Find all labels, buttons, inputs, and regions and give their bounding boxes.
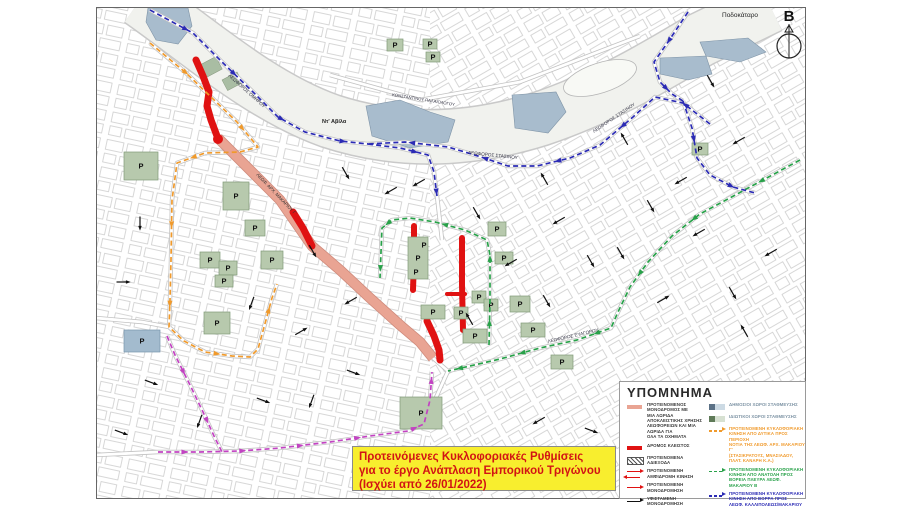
one-way-red-arrow-swatch xyxy=(627,483,644,491)
parking-p-marker: P xyxy=(413,268,418,277)
legend-item-text: ΠΡΟΤΕΙΝΟΜΕΝΗΜΟΝΟΔΡΟΜΗΣΗ xyxy=(647,482,683,493)
legend-item: ΥΦΙΣΤΑΜΕΝΗΜΟΝΟΔΡΟΜΗΣΗ xyxy=(627,496,705,506)
legend-item-text: ΠΡΟΤΕΙΝΟΜΕΝΑΑΔΙΕΞΟΔΑ xyxy=(647,455,683,466)
legend-item-text: ΔΗΜΟΣΙΟΙ ΧΩΡΟΙ ΣΤΑΘΜΕΥΣΗΣ xyxy=(729,402,798,407)
parking-p-marker: P xyxy=(530,326,535,335)
parking-p-marker: P xyxy=(214,319,219,328)
parking-p-marker: P xyxy=(233,192,238,201)
legend-item-text: ΠΡΟΤΕΙΝΟΜΕΝΟΣ ΜΟΝΟΔΡΟΜΟΣ ΜΕΜΙΑ ΛΩΡΙΔΑ ΑΠ… xyxy=(647,402,705,440)
parking-p-marker: P xyxy=(458,309,463,318)
parking-p-marker: P xyxy=(418,409,423,418)
parking-p-marker: P xyxy=(697,145,702,154)
legend-item: ΔΗΜΟΣΙΟΙ ΧΩΡΟΙ ΣΤΑΘΜΕΥΣΗΣ xyxy=(709,402,805,411)
legend-item-text: ΠΡΟΤΕΙΝΟΜΕΝΗ ΚΥΚΛΟΦΟΡΙΑΚΗΚΙΝΗΣΗ ΑΠΟ ΑΝΑΤ… xyxy=(729,467,805,488)
legend-item: ΠΡΟΤΕΙΝΟΜΕΝΗ ΚΥΚΛΟΦΟΡΙΑΚΗΚΙΝΗΣΗ ΑΠΟ ΑΝΑΤ… xyxy=(709,467,805,488)
parking-p-marker: P xyxy=(427,40,432,49)
parking-public-swatch xyxy=(709,403,726,411)
route-arrow-swatch xyxy=(709,492,726,500)
legend-title: ΥΠΟΜΝΗΜΑ xyxy=(627,385,800,400)
dead-end-hatch-swatch xyxy=(627,456,644,464)
parking-p-marker: P xyxy=(221,277,226,286)
legend-item: ΔΡΟΜΟΣ ΚΛΕΙΣΤΟΣ xyxy=(627,443,705,452)
legend-item-text: ΠΡΟΤΕΙΝΟΜΕΝΗΑΜΦΙΔΡΟΜΗ ΚΙΝΗΣΗ xyxy=(647,468,693,479)
legend-item: ΠΡΟΤΕΙΝΟΜΕΝΑΑΔΙΕΞΟΔΑ xyxy=(627,455,705,466)
legend-item: ΠΡΟΤΕΙΝΟΜΕΝΗ ΚΥΚΛΟΦΟΡΙΑΚΗΚΙΝΗΣΗ ΑΠΟ ΒΟΡΡ… xyxy=(709,491,805,506)
map-title-line-2: για το έργο Ανάπλαση Εμπορικού Τριγώνου xyxy=(359,464,609,478)
parking-p-marker: P xyxy=(225,264,230,273)
parking-p-marker: P xyxy=(138,162,143,171)
map-title-line-3: (Ισχύει από 26/01/2022) xyxy=(359,478,609,492)
legend-item-text: ΠΡΟΤΕΙΝΟΜΕΝΗ ΚΥΚΛΟΦΟΡΙΑΚΗΚΙΝΗΣΗ ΑΠΟ ΔΥΤΙ… xyxy=(729,426,805,464)
parking-p-marker: P xyxy=(501,254,506,263)
closed-road-end xyxy=(213,134,223,144)
parking-p-marker: P xyxy=(517,300,522,309)
parking-p-marker: P xyxy=(252,224,257,233)
parking-p-marker: P xyxy=(472,332,477,341)
legend-item-text: ΥΦΙΣΤΑΜΕΝΗΜΟΝΟΔΡΟΜΗΣΗ xyxy=(647,496,683,506)
north-label: B xyxy=(784,8,795,25)
legend-item: ΠΡΟΤΕΙΝΟΜΕΝΗΜΟΝΟΔΡΟΜΗΣΗ xyxy=(627,482,705,493)
parking-p-marker: P xyxy=(421,241,426,250)
parking-p-marker: P xyxy=(494,225,499,234)
parking-p-marker: P xyxy=(269,256,274,265)
route-arrow-swatch xyxy=(709,468,726,476)
legend-item-text: ΠΡΟΤΕΙΝΟΜΕΝΗ ΚΥΚΛΟΦΟΡΙΑΚΗΚΙΝΗΣΗ ΑΠΟ ΒΟΡΡ… xyxy=(729,491,803,506)
legend-item: ΠΡΟΤΕΙΝΟΜΕΝΟΣ ΜΟΝΟΔΡΟΜΟΣ ΜΕΜΙΑ ΛΩΡΙΔΑ ΑΠ… xyxy=(627,402,705,440)
parking-p-marker: P xyxy=(430,308,435,317)
legend-left-column: ΠΡΟΤΕΙΝΟΜΕΝΟΣ ΜΟΝΟΔΡΟΜΟΣ ΜΕΜΙΑ ΛΩΡΙΔΑ ΑΠ… xyxy=(627,402,705,506)
closed-road-swatch xyxy=(627,444,644,452)
parking-p-marker: P xyxy=(207,256,212,265)
legend-item-text: ΙΔΙΩΤΙΚΟΙ ΧΩΡΟΙ ΣΤΑΘΜΕΥΣΗΣ xyxy=(729,414,797,419)
map-label: Ντ' Αβίλα xyxy=(322,119,347,125)
legend-item: ΙΔΙΩΤΙΚΟΙ ΧΩΡΟΙ ΣΤΑΘΜΕΥΣΗΣ xyxy=(709,414,805,423)
legend-item-text: ΔΡΟΜΟΣ ΚΛΕΙΣΤΟΣ xyxy=(647,443,690,448)
map-title-line-1: Προτεινόμενες Κυκλοφοριακές Ρυθμίσεις xyxy=(359,450,609,464)
parking-p-marker: P xyxy=(139,337,144,346)
parking-p-marker: P xyxy=(430,53,435,62)
busway-swatch xyxy=(627,403,644,411)
map-title-box: Προτεινόμενες Κυκλοφοριακές Ρυθμίσεις γι… xyxy=(352,446,616,491)
map-legend: ΥΠΟΜΝΗΜΑ ΠΡΟΤΕΙΝΟΜΕΝΟΣ ΜΟΝΟΔΡΟΜΟΣ ΜΕΜΙΑ … xyxy=(619,381,806,499)
parking-private-swatch xyxy=(709,415,726,423)
parking-p-marker: P xyxy=(415,254,420,263)
one-way-black-arrow-swatch xyxy=(627,497,644,505)
legend-right-column: ΔΗΜΟΣΙΟΙ ΧΩΡΟΙ ΣΤΑΘΜΕΥΣΗΣΙΔΙΩΤΙΚΟΙ ΧΩΡΟΙ… xyxy=(709,402,805,506)
legend-item: ΠΡΟΤΕΙΝΟΜΕΝΗΑΜΦΙΔΡΟΜΗ ΚΙΝΗΣΗ xyxy=(627,468,705,479)
traffic-map-page: PPPPPPPPPPPPPPPPPPPPPPPPPPPΠοδοκάταροΝτ'… xyxy=(0,0,900,506)
two-way-arrows-swatch xyxy=(627,469,644,479)
parking-p-marker: P xyxy=(392,41,397,50)
route-arrow-swatch xyxy=(709,427,726,435)
legend-item: ΠΡΟΤΕΙΝΟΜΕΝΗ ΚΥΚΛΟΦΟΡΙΑΚΗΚΙΝΗΣΗ ΑΠΟ ΔΥΤΙ… xyxy=(709,426,805,464)
parking-p-marker: P xyxy=(476,293,481,302)
parking-p-marker: P xyxy=(559,358,564,367)
map-label: Ποδοκάταρο xyxy=(722,11,758,19)
